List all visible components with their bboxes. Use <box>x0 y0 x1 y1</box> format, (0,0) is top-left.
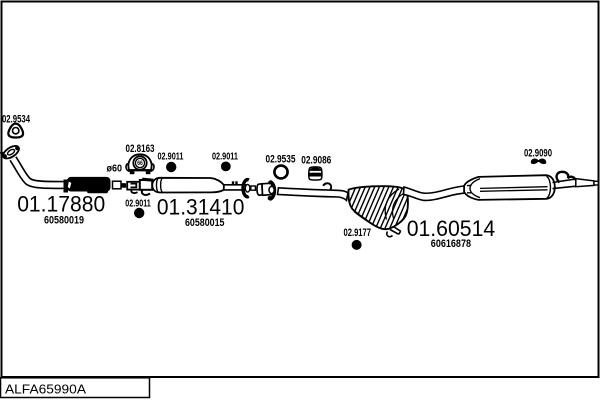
svg-text:02.9177: 02.9177 <box>344 227 372 239</box>
svg-text:02.9090: 02.9090 <box>524 147 552 159</box>
svg-text:60580015: 60580015 <box>185 217 225 229</box>
svg-text:02.9011: 02.9011 <box>158 151 184 163</box>
svg-text:02.9535: 02.9535 <box>266 153 296 165</box>
svg-text:60616878: 60616878 <box>431 238 471 250</box>
svg-text:01.17880: 01.17880 <box>17 192 105 217</box>
svg-text:02.9011: 02.9011 <box>212 150 238 162</box>
svg-text:ALFA65990A: ALFA65990A <box>5 382 87 396</box>
svg-text:ø60: ø60 <box>107 164 123 175</box>
svg-text:02.9011: 02.9011 <box>125 197 151 209</box>
svg-text:66: 66 <box>137 161 143 167</box>
svg-text:02.9086: 02.9086 <box>301 155 331 167</box>
svg-text:60580019: 60580019 <box>44 214 84 226</box>
svg-text:02.8163: 02.8163 <box>126 143 155 155</box>
